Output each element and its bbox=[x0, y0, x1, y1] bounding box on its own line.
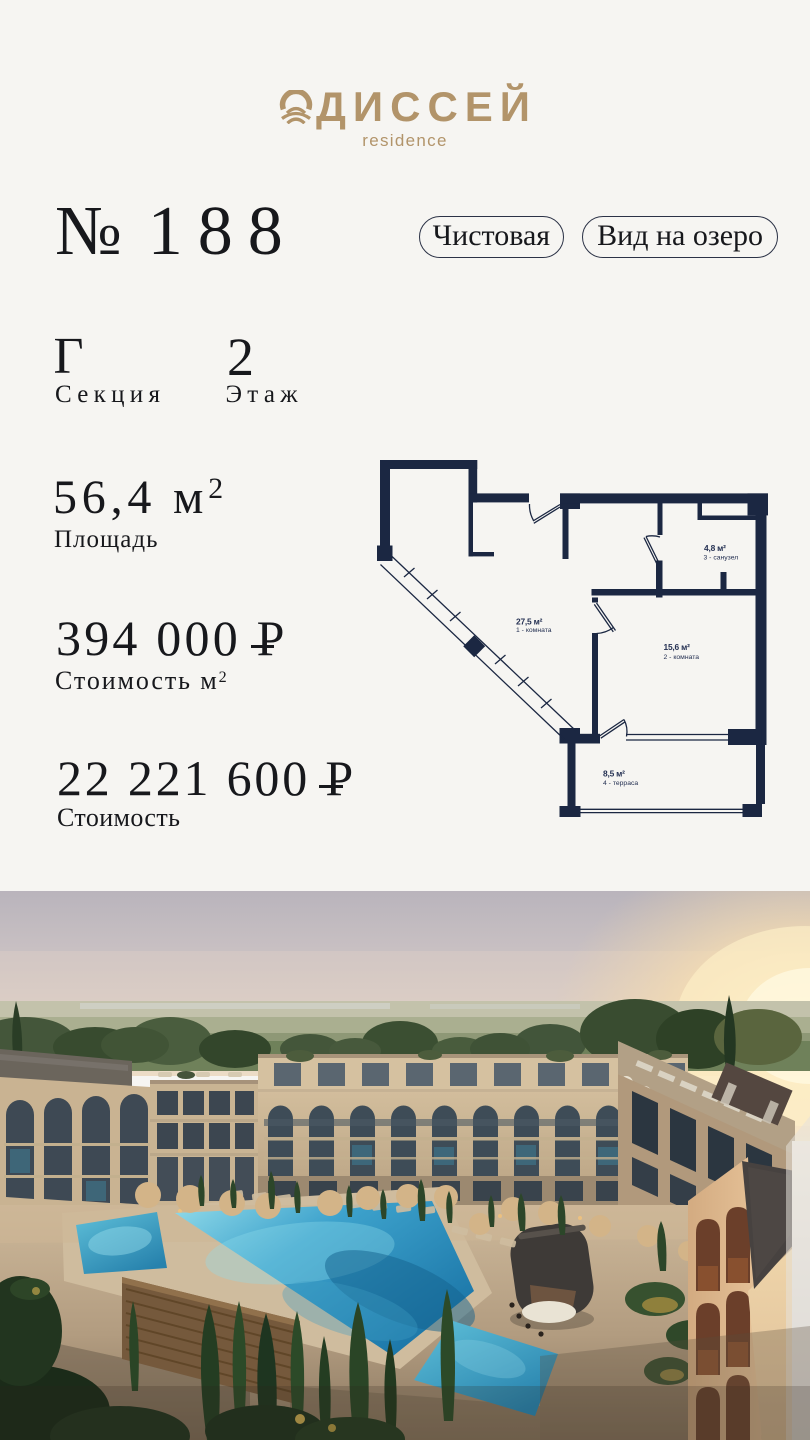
svg-text:15,6 м²: 15,6 м² bbox=[664, 642, 691, 652]
svg-text:27,5 м²: 27,5 м² bbox=[516, 617, 543, 627]
svg-text:4,8 м²: 4,8 м² bbox=[704, 543, 726, 553]
svg-text:2 - комната: 2 - комната bbox=[664, 654, 700, 661]
svg-text:8,5 м²: 8,5 м² bbox=[603, 769, 625, 779]
svg-text:4 - терраса: 4 - терраса bbox=[603, 780, 638, 787]
svg-text:3 - санузел: 3 - санузел bbox=[704, 555, 739, 562]
svg-text:1 - комната: 1 - комната bbox=[516, 627, 552, 634]
